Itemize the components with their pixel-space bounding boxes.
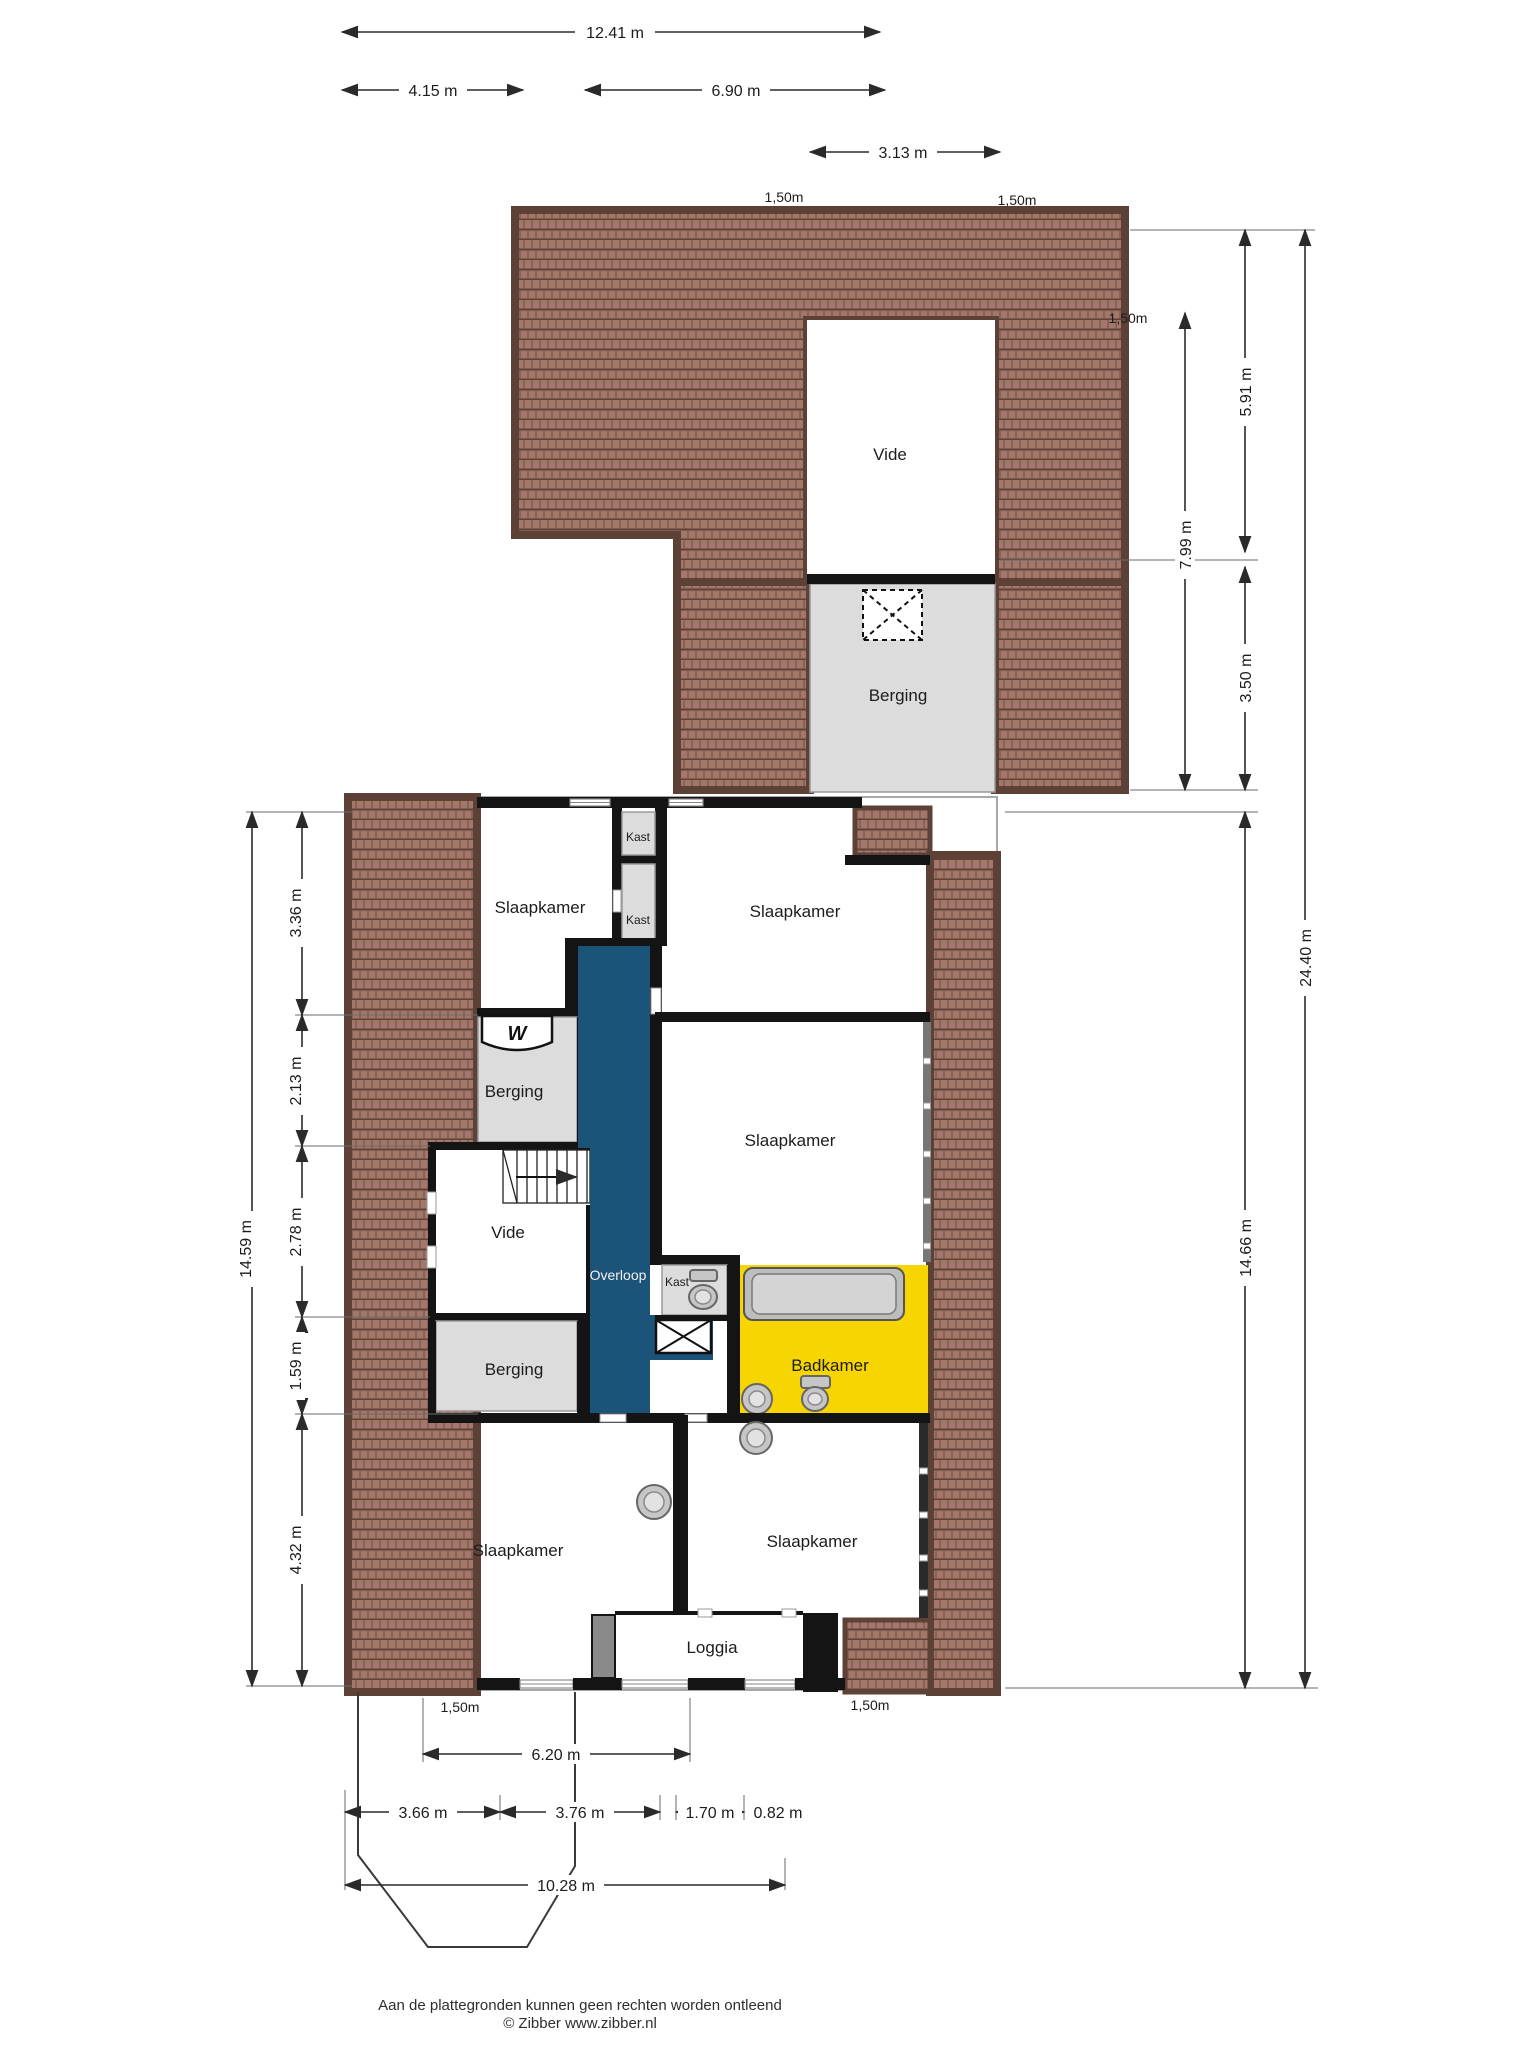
toilet-icon-kast xyxy=(689,1270,717,1309)
washbasin-icon-se xyxy=(740,1422,772,1454)
room-label-berging-top: Berging xyxy=(869,686,928,705)
svg-text:W: W xyxy=(508,1023,529,1045)
dim-left-seg1: 3.36 m xyxy=(288,889,305,938)
dim-left-total: 14.59 m xyxy=(238,1220,255,1278)
toilet-icon-bath xyxy=(801,1376,830,1411)
room-label-slaapkamer-east: Slaapkamer xyxy=(745,1131,836,1150)
main-roof-bottom-right xyxy=(845,1620,930,1692)
window-lower-cross xyxy=(685,1414,707,1422)
dim-right-lower: 3.50 m xyxy=(1238,654,1255,703)
wall-kast-c-bottom xyxy=(655,1315,727,1321)
footer: Aan de plattegronden kunnen geen rechten… xyxy=(378,1997,782,2032)
roof-window-vide-1 xyxy=(427,1192,436,1214)
wall-kast-mid xyxy=(612,855,667,864)
wall-between-bedrooms xyxy=(673,1415,688,1613)
main-roof-right-top xyxy=(855,808,930,855)
window-top-2 xyxy=(669,799,703,806)
room-label-vide-west: Vide xyxy=(491,1223,525,1242)
room-label-slaapkamer-ne: Slaapkamer xyxy=(750,902,841,921)
stairs-icon xyxy=(503,1150,590,1203)
dim-bottom-row2b: 3.76 m xyxy=(556,1805,605,1822)
footer-credit: © Zibber www.zibber.nl xyxy=(503,2015,657,2032)
dim-left-seg5: 4.32 m xyxy=(288,1526,305,1575)
dim-right-upper: 5.91 m xyxy=(1238,368,1255,417)
room-label-slaapkamer-se: Slaapkamer xyxy=(767,1532,858,1551)
main-building: W xyxy=(348,797,997,1692)
room-label-badkamer: Badkamer xyxy=(791,1356,869,1375)
dim-right-total: 24.40 m xyxy=(1298,929,1315,987)
dim-top-total: 12.41 m xyxy=(586,25,644,42)
window-top-1 xyxy=(570,799,610,806)
room-kast-b xyxy=(622,864,655,940)
vide-floor-edge-wall xyxy=(807,574,995,584)
room-label-vide-top: Vide xyxy=(873,445,907,464)
dim-bottom-row1: 6.20 m xyxy=(532,1747,581,1764)
dim-bottom-row3: 10.28 m xyxy=(537,1878,595,1895)
dimensions-bottom: 1,50m 1,50m 6.20 m 3.66 m 3.76 m 1.70 m … xyxy=(345,1697,889,1895)
dim-top-left: 4.15 m xyxy=(409,83,458,100)
washbasin-icon-bath xyxy=(742,1384,772,1414)
top-roof-left-column xyxy=(677,582,810,790)
room-label-kast-a: Kast xyxy=(626,830,651,844)
skylight-icon xyxy=(863,590,922,640)
void-hatch-icon xyxy=(656,1320,711,1353)
wall-corridor-top xyxy=(565,938,662,946)
wall-kast-right xyxy=(655,808,667,946)
washbasin-icon-sw xyxy=(637,1485,671,1519)
dim-left-seg4: 1.59 m xyxy=(288,1342,305,1391)
wall-berging-sw-right xyxy=(577,1321,590,1415)
loggia-pillar-left xyxy=(592,1615,615,1678)
door-kast-b xyxy=(613,890,621,912)
roof-window-vide-2 xyxy=(427,1246,436,1268)
wall-se-east xyxy=(919,1423,928,1618)
wall-bottom xyxy=(477,1678,845,1690)
room-label-berging-southwest: Berging xyxy=(485,1360,544,1379)
top-roof-right-column xyxy=(995,582,1125,790)
loggia-top-tick-2 xyxy=(782,1609,796,1617)
dim-bottom-eave-left: 1,50m xyxy=(441,1699,480,1715)
wall-ne-bottom xyxy=(655,1012,930,1022)
dim-right-building: 14.66 m xyxy=(1238,1219,1255,1277)
room-label-loggia: Loggia xyxy=(686,1638,738,1657)
wall-nw-corridor xyxy=(565,938,578,1017)
mechanical-ventilation-icon: W xyxy=(482,1016,552,1050)
wall-step-right xyxy=(845,855,930,865)
wall-vide-left xyxy=(428,1142,436,1320)
bathtub-icon xyxy=(744,1268,904,1320)
room-label-kast-b: Kast xyxy=(626,913,651,927)
room-label-overloop: Overloop xyxy=(590,1267,647,1283)
dim-top-eave-right: 1,50m xyxy=(998,192,1037,208)
room-label-kast-c: Kast xyxy=(665,1275,690,1289)
footer-disclaimer: Aan de plattegronden kunnen geen rechten… xyxy=(378,1997,782,2014)
room-label-berging-west: Berging xyxy=(485,1082,544,1101)
main-roof-right-band xyxy=(930,855,997,1692)
room-label-slaapkamer-sw: Slaapkamer xyxy=(473,1541,564,1560)
dim-bottom-eave-right: 1,50m xyxy=(851,1697,890,1713)
dim-left-seg2: 2.13 m xyxy=(288,1057,305,1106)
door-ne-bedroom xyxy=(651,988,661,1014)
wall-berging-sw-left xyxy=(428,1321,436,1413)
dim-top-eave-left: 1,50m xyxy=(765,189,804,205)
door-sw-bedroom xyxy=(600,1414,626,1422)
wall-vide-bottom xyxy=(428,1313,590,1321)
room-label-slaapkamer-nw: Slaapkamer xyxy=(495,898,586,917)
wall-kast-left xyxy=(612,808,622,946)
floor-plan-canvas: Vide Berging xyxy=(0,0,1536,2048)
top-building: Vide Berging xyxy=(515,210,1125,792)
dim-right-inner: 7.99 m xyxy=(1178,521,1195,570)
loggia-top-tick-1 xyxy=(698,1609,712,1617)
wall-bath-left xyxy=(727,1265,740,1415)
dim-top-vide: 3.13 m xyxy=(879,145,928,162)
dim-bottom-row2c: 1.70 m xyxy=(686,1805,735,1822)
wall-vide-top xyxy=(428,1142,590,1150)
dim-bottom-row2a: 3.66 m xyxy=(399,1805,448,1822)
dim-bottom-row2d: 0.82 m xyxy=(754,1805,803,1822)
dim-right-eave: 1,50m xyxy=(1109,310,1148,326)
dim-left-seg3: 2.78 m xyxy=(288,1208,305,1257)
dimensions-top: 12.41 m 4.15 m 6.90 m 3.13 m 1,50m 1,50m xyxy=(342,22,1036,208)
wall-kast-c-top xyxy=(650,1255,740,1265)
dim-top-right: 6.90 m xyxy=(712,83,761,100)
